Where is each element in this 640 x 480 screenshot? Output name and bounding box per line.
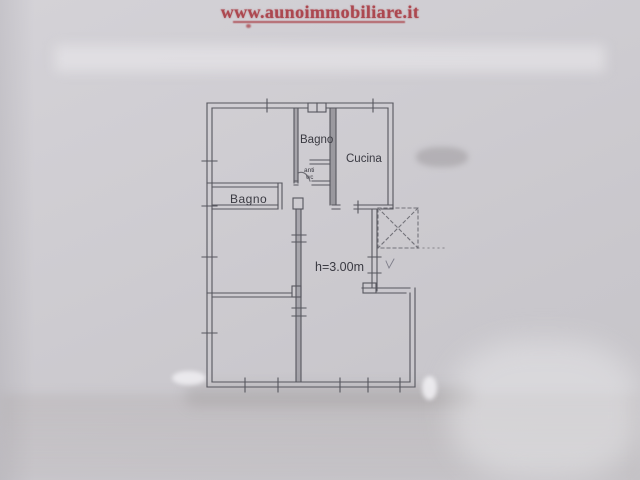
wall-jog-hall [293,198,303,209]
room-label-anti: anti [304,167,314,174]
room-label-bagno-top: Bagno [300,134,333,146]
room-label-bagno-left: Bagno [230,192,267,206]
wall-bath-left-right [278,183,282,209]
floor-plan-drawing: Bagno Cucina anti wc Bagno h=3.00m [0,0,640,480]
wall-right-kitchen [388,103,393,209]
floorplan-photo: www.aunoimmobiliare.it [0,0,640,480]
pen-check-mark [386,259,394,268]
wall-livingroom-top [362,288,410,293]
window-ticks-bottom [245,378,400,392]
wall-bottom [207,382,415,387]
wall-fill-bath-kitchen [330,108,336,205]
wall-right-living [410,288,415,387]
room-label-cucina: Cucina [346,153,382,165]
wall-fill-spine-upper [294,108,298,183]
wall-bedrooms-divider [207,293,292,297]
wall-bath-top-bottom [310,160,330,164]
ceiling-height-note: h=3.00m [315,260,364,274]
wall-top [207,103,393,108]
shaft-dashed-box [378,208,418,248]
wall-antiwc-bottom [294,181,330,185]
wall-bedroom1-bottom [207,183,282,187]
wall-left [207,103,212,387]
window-ticks-top [267,99,373,112]
room-label-wc: wc [305,175,313,181]
wall-right-middle [372,209,377,291]
